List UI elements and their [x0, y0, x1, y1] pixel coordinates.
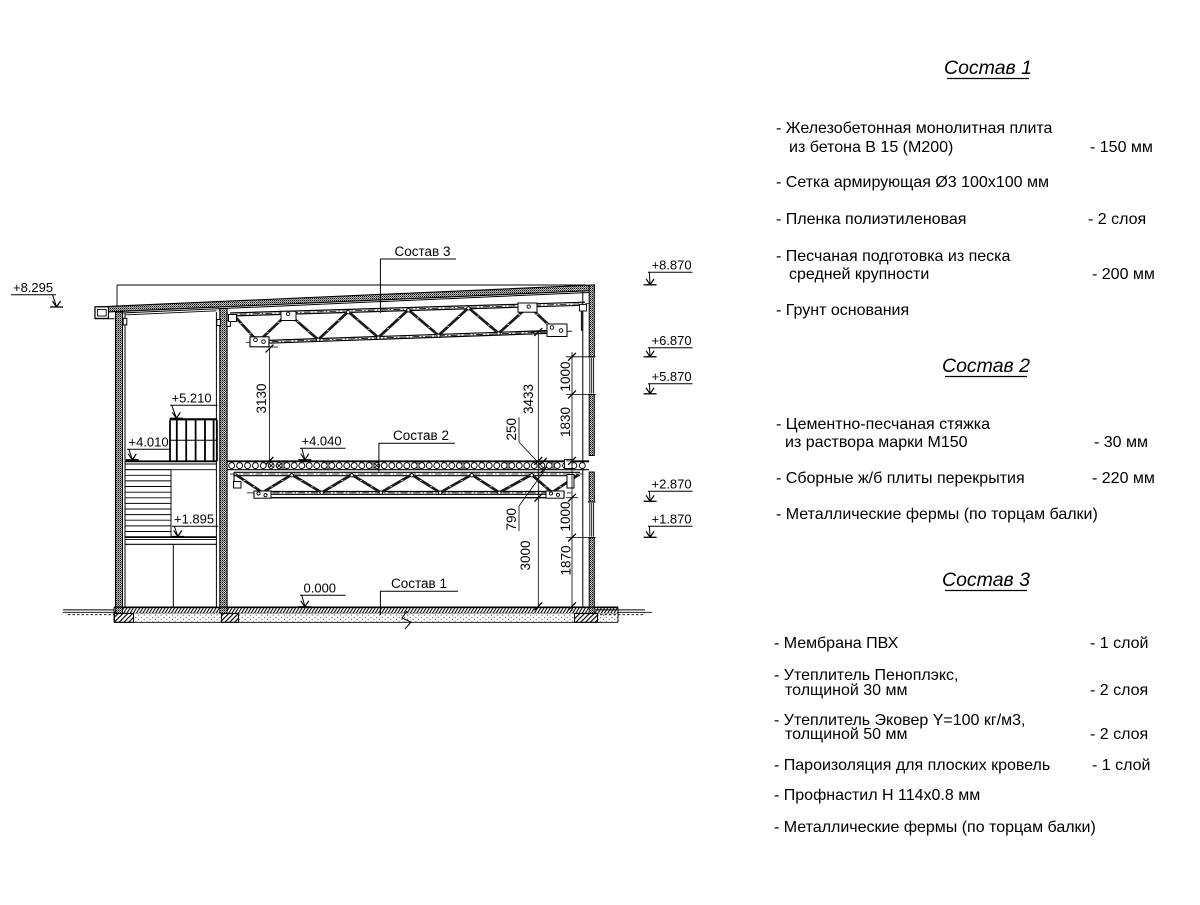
svg-text:+5.870: +5.870 — [652, 369, 692, 384]
svg-text:- Песчаная подготовка из песка: - Песчаная подготовка из песка — [776, 248, 1011, 265]
svg-text:- Металлические фермы (по торц: - Металлические фермы (по торцам балки) — [774, 819, 1096, 836]
svg-text:- 150 мм: - 150 мм — [1090, 139, 1153, 156]
svg-text:- Сетка армирующая Ø3 100х100: - Сетка армирующая Ø3 100х100 мм — [776, 174, 1049, 191]
svg-text:+1.895: +1.895 — [174, 512, 214, 527]
svg-text:790: 790 — [504, 508, 519, 531]
svg-text:- Мембрана ПВХ: - Мембрана ПВХ — [774, 635, 899, 652]
svg-text:- 1 слой: - 1 слой — [1092, 757, 1150, 774]
svg-text:- Профнастил Н 114х0.8 мм: - Профнастил Н 114х0.8 мм — [774, 787, 980, 804]
svg-text:- 2 слоя: - 2 слоя — [1090, 726, 1148, 743]
svg-text:толщиной 50 мм: толщиной 50 мм — [785, 726, 908, 743]
svg-text:толщиной 30 мм: толщиной 30 мм — [785, 682, 908, 699]
svg-text:0.000: 0.000 — [304, 581, 337, 596]
svg-text:- 30 мм: - 30 мм — [1094, 434, 1148, 451]
svg-text:- Пленка полиэтиленовая: - Пленка полиэтиленовая — [776, 211, 966, 228]
svg-text:- 200 мм: - 200 мм — [1092, 266, 1155, 283]
svg-text:- 2 слоя: - 2 слоя — [1088, 211, 1146, 228]
svg-text:+4.040: +4.040 — [302, 434, 342, 449]
svg-text:1870: 1870 — [559, 545, 574, 575]
svg-text:Состав 3: Состав 3 — [395, 244, 451, 259]
svg-text:Состав 2: Состав 2 — [942, 355, 1030, 377]
svg-text:+6.870: +6.870 — [652, 333, 692, 348]
svg-text:+1.870: +1.870 — [652, 512, 692, 527]
svg-text:средней крупности: средней крупности — [789, 266, 929, 283]
svg-text:1830: 1830 — [558, 407, 573, 437]
svg-text:- Цементно-песчаная стяжка: - Цементно-песчаная стяжка — [776, 416, 990, 433]
svg-text:из раствора марки М150: из раствора марки М150 — [785, 434, 968, 451]
svg-text:- Сборные ж/б плиты перекрытия: - Сборные ж/б плиты перекрытия — [776, 470, 1025, 487]
svg-text:Состав 3: Состав 3 — [942, 569, 1030, 591]
svg-text:+8.295: +8.295 — [13, 280, 53, 295]
svg-text:- 1 слой: - 1 слой — [1090, 635, 1148, 652]
svg-text:1000: 1000 — [558, 501, 573, 531]
svg-text:из бетона В 15 (М200): из бетона В 15 (М200) — [789, 139, 953, 156]
svg-text:+2.870: +2.870 — [652, 477, 692, 492]
svg-text:+8.870: +8.870 — [652, 258, 692, 273]
svg-text:Состав 1: Состав 1 — [944, 57, 1032, 79]
svg-text:250: 250 — [504, 418, 519, 441]
svg-text:Состав 2: Состав 2 — [393, 428, 449, 443]
svg-text:3000: 3000 — [518, 540, 533, 570]
svg-text:+5.210: +5.210 — [172, 391, 212, 406]
svg-text:- 2 слоя: - 2 слоя — [1090, 682, 1148, 699]
svg-text:- Пароизоляция для плоских кро: - Пароизоляция для плоских кровель — [774, 757, 1050, 774]
svg-text:- Металлические фермы (по торц: - Металлические фермы (по торцам балки) — [776, 506, 1098, 523]
svg-text:Состав 1: Состав 1 — [391, 576, 447, 591]
svg-text:+4.010: +4.010 — [129, 435, 169, 450]
svg-text:- Железобетонная монолитная п: - Железобетонная монолитная плита — [776, 120, 1053, 137]
svg-text:3433: 3433 — [521, 384, 536, 414]
svg-text:- Грунт основания: - Грунт основания — [776, 302, 909, 319]
svg-text:3130: 3130 — [254, 383, 269, 413]
svg-text:- 220 мм: - 220 мм — [1092, 470, 1155, 487]
svg-text:1000: 1000 — [558, 361, 573, 391]
